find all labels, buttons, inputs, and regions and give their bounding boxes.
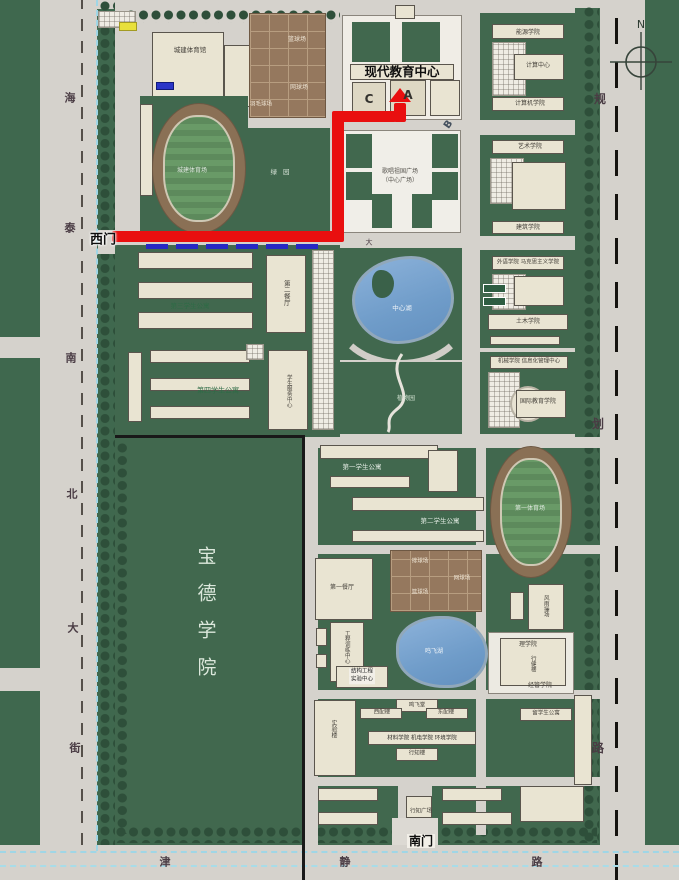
south-bar-3	[442, 788, 502, 801]
plaza-green-4	[432, 172, 458, 200]
map-label-central-plaza-line2: （中心广场）	[382, 178, 418, 184]
south-bar-2	[318, 812, 378, 825]
baode-boundary-east	[302, 435, 305, 880]
map-label-building-c: C	[365, 93, 374, 105]
south-bar-4	[442, 812, 512, 825]
map-label-colleges-row: 材料学院 机电学院 环境学院	[387, 736, 457, 742]
lab-building-block	[314, 700, 356, 776]
map-label-apartment-3: 第三学生公寓	[171, 303, 210, 310]
east-road	[597, 0, 645, 880]
campus-map: N 海泰南北大街规划路津静路西门南门现代教育中心ACB宝德学院中心湖鸣飞湖植物园…	[0, 0, 679, 880]
map-label-south-gate: 南门	[407, 834, 435, 848]
map-label-main-stadium: 城建体育场	[177, 168, 207, 174]
map-label-mech-info-center: 机械学院 信息化管理中心	[498, 359, 560, 365]
west-street	[40, 0, 97, 880]
college-block-2-main	[512, 162, 566, 210]
apartment3-bar-2	[138, 282, 253, 299]
indoor-sports-annex	[510, 592, 524, 620]
apartment4-wing-west	[128, 352, 142, 422]
apartment4-bar-1	[150, 350, 250, 363]
map-label-modern-education-center: 现代教育中心	[364, 66, 439, 79]
map-label-street-south-char-2: 静	[340, 857, 351, 868]
warmup-hall-building	[428, 450, 458, 492]
east-road-median	[615, 4, 618, 880]
yellow-marker	[119, 22, 137, 31]
south-bar-1	[318, 788, 378, 801]
plaza-green-3	[432, 134, 458, 168]
apartment1-bar-1	[320, 445, 438, 459]
map-label-indoor-sports-hall: 风雨操场	[542, 595, 548, 617]
map-label-baode-college: 宝德学院	[196, 546, 215, 694]
map-label-road-char-da: 大	[366, 240, 373, 247]
map-label-mingfei-hall: 鸣飞堂	[409, 703, 426, 709]
map-label-apartment-2: 第二学生公寓	[421, 518, 460, 525]
map-label-lab-building: 实验楼	[330, 720, 336, 738]
compass: N	[606, 18, 676, 94]
map-label-street-west-char-5: 大	[68, 623, 79, 634]
stadium2-field	[500, 458, 562, 566]
map-label-badminton-courts: 羽毛球场	[250, 102, 272, 108]
natatorium-badge	[156, 82, 174, 90]
education-entry-block	[395, 5, 415, 19]
map-label-civil-college: 土木学院	[516, 319, 540, 325]
route-segment-1	[112, 231, 338, 242]
east-tall-building	[574, 695, 592, 785]
map-label-street-west-char-2: 泰	[65, 223, 76, 234]
map-label-xingzhi-building: 行知楼	[409, 751, 426, 757]
engineering-annex-2	[316, 654, 327, 668]
green-sign-1	[483, 284, 506, 293]
map-label-tennis-courts: 网球场	[290, 85, 308, 91]
map-label-west-gate: 西门	[90, 234, 116, 247]
engineering-annex-1	[316, 628, 327, 646]
culture-wall	[246, 344, 264, 360]
plaza-green-6	[412, 194, 432, 228]
apartment3-bar-3	[138, 312, 253, 329]
apartment1-bar-2	[330, 476, 410, 488]
map-label-central-lake: 中心湖	[392, 305, 412, 312]
trees-west	[99, 0, 115, 845]
college-block-3-main	[514, 276, 564, 306]
route-segment-3	[332, 111, 396, 122]
map-label-engineering-training-center: 工程训练中心	[343, 631, 349, 664]
map-label-art-college: 艺术学院	[518, 144, 542, 150]
plaza-green-5	[372, 194, 392, 228]
plaza-green-2	[346, 172, 372, 200]
baode-boundary-top	[115, 435, 305, 438]
map-label-street-west-char-3: 南	[66, 353, 77, 364]
apartment2-bar-1	[352, 497, 484, 511]
apartment3-bar-1	[138, 252, 253, 269]
map-label-street-east-char-2: 划	[592, 418, 604, 430]
map-label-street-south-char-3: 路	[532, 857, 543, 868]
south-complex	[520, 786, 584, 822]
green-sign-2	[483, 297, 506, 306]
map-label-student-service-center: 学生服务中心	[285, 375, 291, 408]
map-label-dining-hall-1: 第一餐厅	[330, 585, 354, 591]
map-label-energy-college: 能源学院	[516, 30, 540, 36]
map-label-xingjian-building: 行健楼	[529, 656, 535, 673]
map-label-street-east-char-1: 规	[594, 93, 606, 105]
map-label-econ-mgmt-college: 经管学院	[528, 683, 552, 689]
map-label-intl-student-apartment: 留学生公寓	[532, 711, 560, 717]
map-label-gymnasium: 城建体育馆	[174, 47, 207, 54]
lower-road-h3	[312, 777, 600, 786]
route-segment-2	[332, 118, 344, 242]
map-label-east-annex: 东配楼	[438, 710, 455, 716]
map-label-central-plaza-line1: 歌唱祖国广场	[382, 169, 418, 175]
college-block-3-row	[490, 336, 560, 345]
map-label-dining-hall-2: 第二餐厅	[283, 280, 290, 306]
boundary-dashed-west	[96, 0, 98, 851]
apartment4-bar-3	[150, 406, 250, 419]
education-courtyard-left	[352, 22, 390, 62]
map-label-structural-lab-line2: 实验中心	[349, 676, 375, 684]
trees-south	[115, 826, 597, 843]
map-label-volleyball-courts: 排球场	[412, 559, 429, 565]
education-courtyard-right	[402, 22, 440, 62]
west-branch-road-2	[0, 668, 42, 691]
apartment2-bar-2	[352, 530, 484, 542]
map-label-street-east-char-3: 路	[592, 742, 604, 754]
map-label-computer-college: 计算机学院	[515, 101, 545, 107]
plaza-green-1	[346, 134, 372, 168]
stand-building	[140, 104, 153, 196]
map-label-intl-education-college: 国际教育学院	[520, 399, 556, 405]
west-branch-road-1	[0, 337, 42, 358]
map-label-street-west-char-6: 街	[70, 743, 81, 754]
map-label-botanical-garden: 植物园	[397, 396, 415, 402]
map-label-tennis-courts-south: 网球场	[454, 576, 471, 582]
map-label-west-annex: 西配楼	[374, 710, 391, 716]
map-label-xingzhi-square: 行知广场	[410, 809, 432, 815]
map-label-computing-center: 计算中心	[526, 63, 550, 69]
map-label-architecture-college: 建筑学院	[516, 225, 540, 231]
map-label-mingfei-lake: 鸣飞湖	[425, 649, 443, 655]
map-label-basketball-courts-south: 篮球场	[412, 590, 429, 596]
map-label-structural-lab-line1: 结构工程	[349, 668, 375, 676]
map-label-apartment-1: 第一学生公寓	[343, 464, 382, 471]
map-label-green-garden: 绿园	[271, 169, 296, 176]
map-label-science-college: 理学院	[519, 642, 537, 648]
map-label-building-a: A	[403, 89, 412, 101]
map-label-street-west-char-1: 海	[65, 93, 76, 104]
education-building-east-wing	[430, 80, 460, 116]
map-label-street-west-char-4: 北	[67, 489, 78, 500]
map-label-basketball-courts: 篮球场	[288, 37, 306, 43]
route-segment-4	[394, 103, 406, 122]
map-label-stadium-1: 第一体育场	[515, 506, 545, 512]
compass-n-label: N	[637, 18, 645, 31]
map-label-street-south-char-1: 津	[160, 857, 171, 868]
map-label-foreign-marxism-college: 外语学院 马克思主义学院	[497, 260, 559, 266]
map-label-apartment-4: 第四学生公寓	[197, 388, 239, 395]
route-start-marker	[146, 244, 318, 249]
botanical-path	[340, 352, 462, 434]
trees-baode-west	[116, 442, 129, 834]
colonnade-strip	[312, 250, 334, 430]
green-garden-lawn	[248, 128, 330, 235]
west-street-median	[81, 0, 83, 845]
boundary-dashed-south-1	[0, 851, 679, 853]
